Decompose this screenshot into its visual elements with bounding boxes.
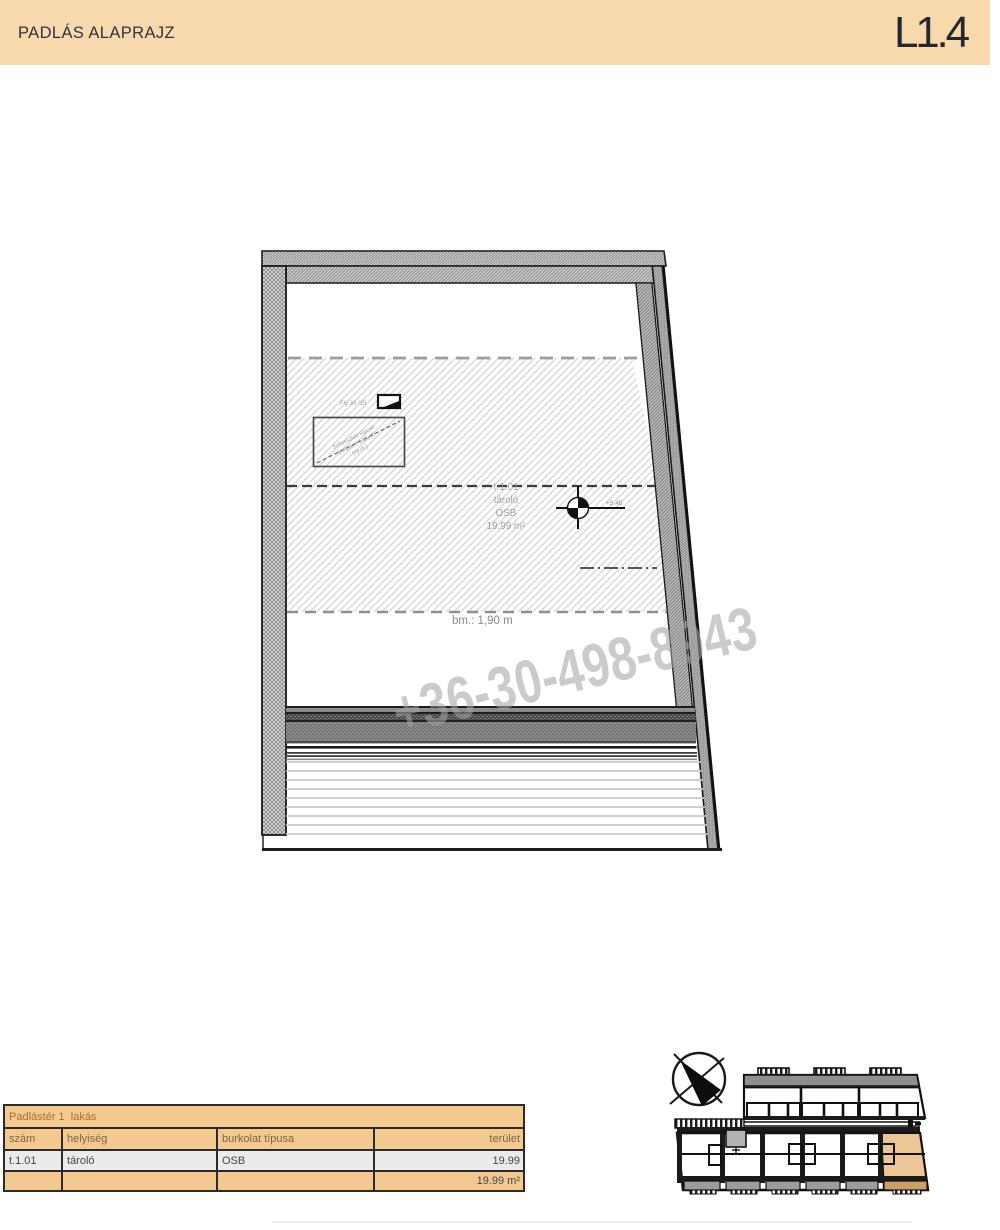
svg-text:bm.: 1,90 m: bm.: 1,90 m [452,615,513,627]
svg-text:t-1.01: t-1.01 [493,482,518,493]
svg-text:+5,45: +5,45 [606,500,623,507]
svg-text:tároló: tároló [494,495,519,506]
svg-text:Fly 30 /15: Fly 30 /15 [340,401,367,407]
svg-text:19.99 m²: 19.99 m² [487,521,526,532]
svg-text:OSB: OSB [496,508,517,519]
